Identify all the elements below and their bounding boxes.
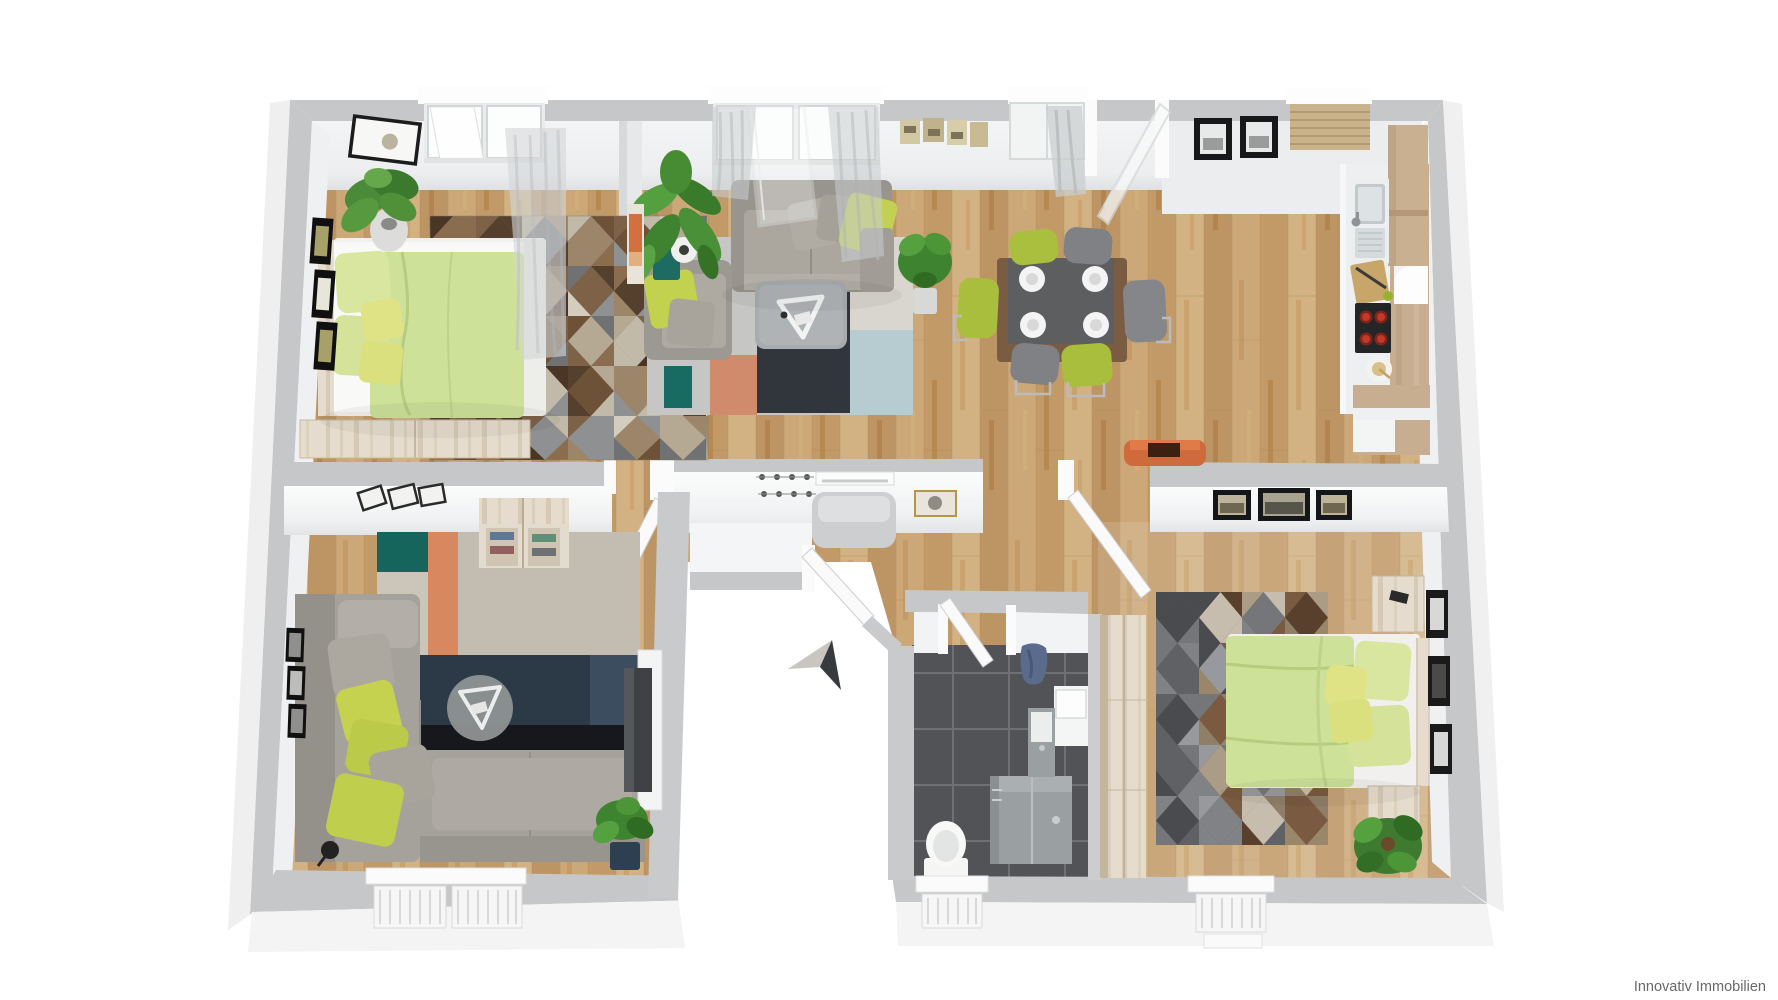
svg-text:Innovativ Immobilien: Innovativ Immobilien <box>1634 979 1766 995</box>
